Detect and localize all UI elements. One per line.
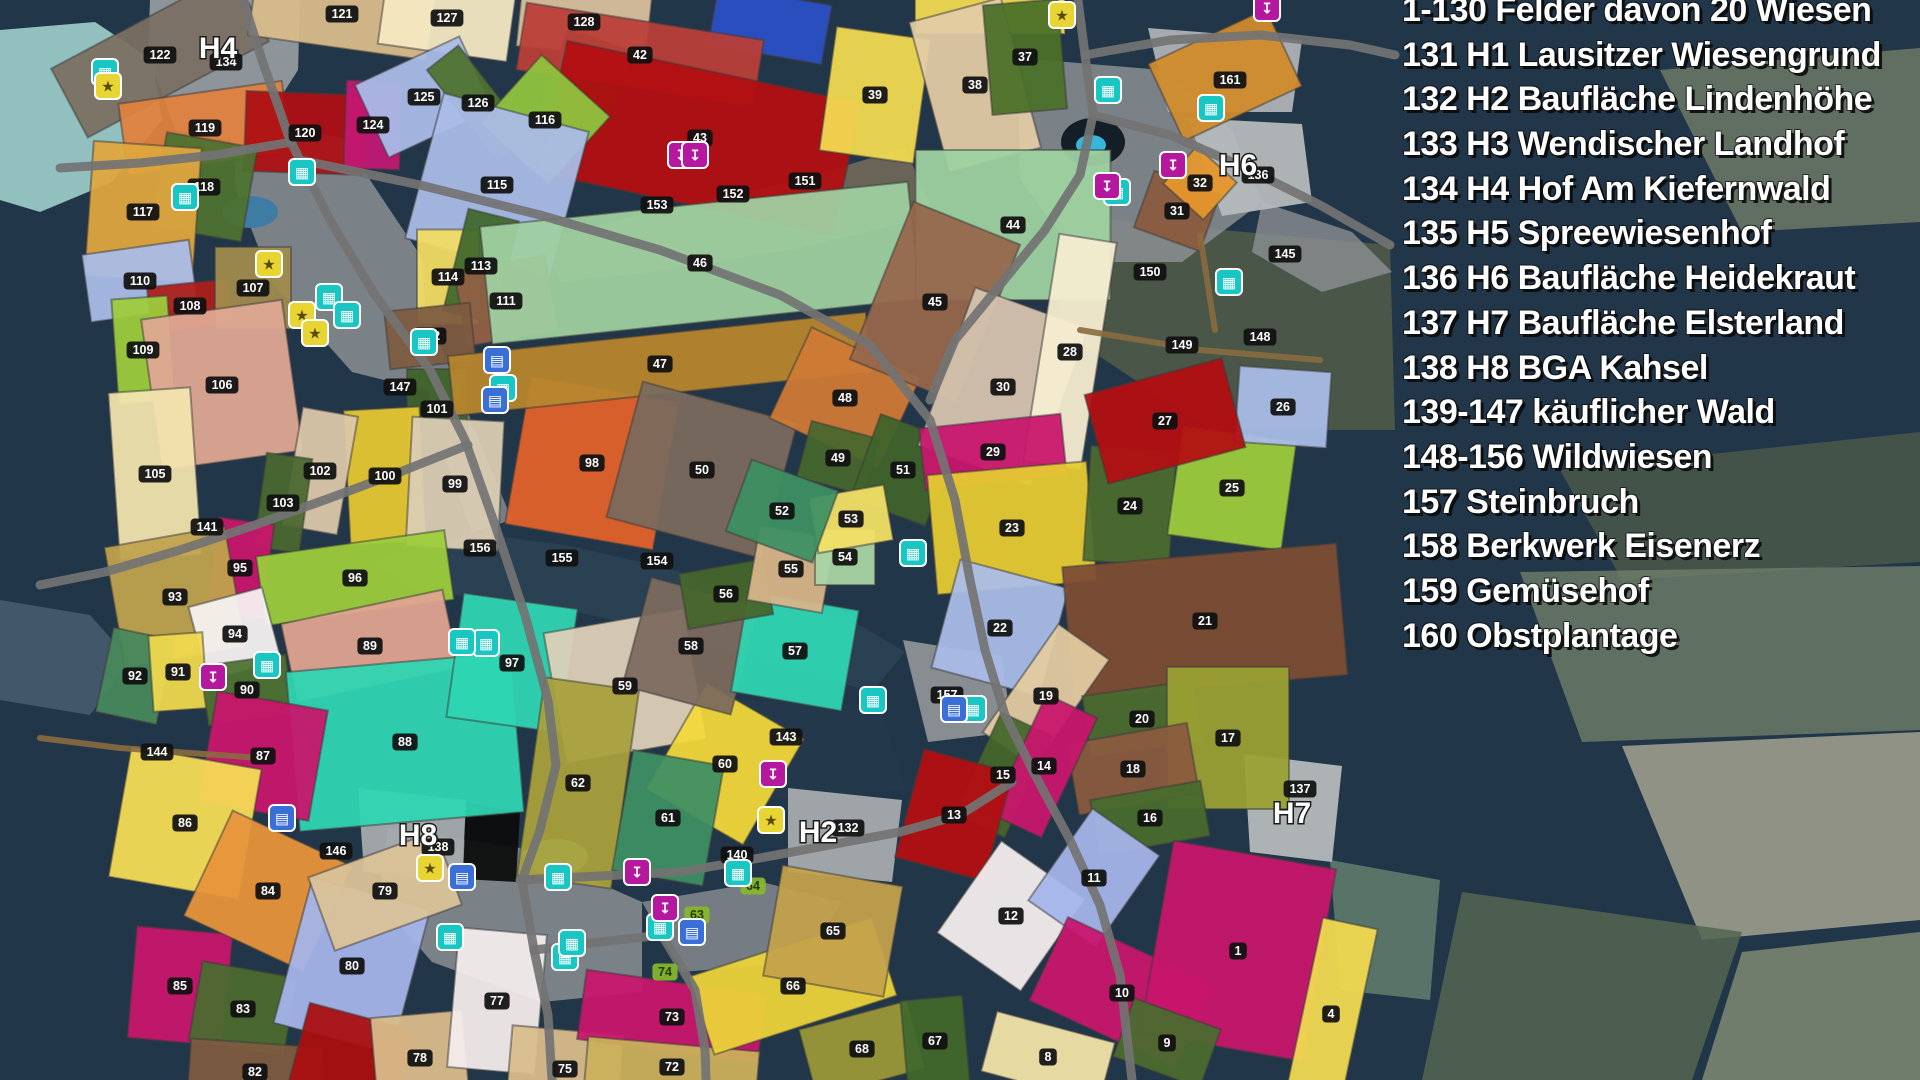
field-badge-152: 152	[717, 186, 750, 203]
svg-text:★: ★	[262, 256, 275, 274]
field-badge-100: 100	[369, 468, 402, 485]
svg-text:152: 152	[723, 187, 744, 201]
svg-text:61: 61	[661, 811, 675, 825]
svg-text:122: 122	[150, 48, 171, 62]
svg-text:143: 143	[776, 730, 797, 744]
poi-icon: ★	[1049, 2, 1075, 28]
svg-text:38: 38	[968, 78, 982, 92]
production-icon: ▦	[437, 924, 463, 950]
legend-line: 159 Gemüsehof	[1402, 569, 1920, 614]
svg-text:109: 109	[133, 343, 154, 357]
poi-icon: ★	[256, 251, 282, 277]
field-badge-87: 87	[250, 748, 275, 765]
svg-text:★: ★	[308, 325, 321, 343]
svg-text:▦: ▦	[906, 545, 920, 563]
svg-text:98: 98	[585, 456, 599, 470]
field-badge-48: 48	[832, 390, 857, 407]
svg-text:▦: ▦	[443, 929, 457, 947]
unload-point-icon: ↧	[200, 664, 226, 690]
svg-text:75: 75	[558, 1062, 572, 1076]
svg-text:8: 8	[1045, 1050, 1052, 1064]
svg-text:▦: ▦	[551, 869, 565, 887]
svg-text:51: 51	[896, 463, 910, 477]
svg-text:59: 59	[618, 679, 632, 693]
svg-text:161: 161	[1220, 73, 1241, 87]
production-icon: ▦	[545, 864, 571, 890]
field-badge-94: 94	[222, 626, 247, 643]
field-badge-150: 150	[1134, 264, 1167, 281]
field-badge-141: 141	[191, 519, 224, 536]
svg-text:127: 127	[437, 11, 458, 25]
svg-text:62: 62	[571, 776, 585, 790]
svg-text:25: 25	[1225, 481, 1239, 495]
hof-label-H2: H2	[799, 816, 837, 849]
svg-text:65: 65	[826, 924, 840, 938]
field-badge-95: 95	[227, 560, 252, 577]
unload-point-icon: ↧	[760, 761, 786, 787]
field-badge-85: 85	[167, 978, 192, 995]
map-screenshot: 1221211271284243393837119120124125126118…	[0, 0, 1920, 1080]
field-badge-32: 32	[1187, 175, 1212, 192]
svg-text:92: 92	[128, 669, 142, 683]
field-badge-151: 151	[789, 173, 822, 190]
svg-text:20: 20	[1135, 712, 1149, 726]
svg-text:▦: ▦	[260, 657, 274, 675]
svg-text:15: 15	[996, 768, 1010, 782]
svg-text:22: 22	[993, 621, 1007, 635]
field-badge-22: 22	[987, 620, 1012, 637]
svg-text:44: 44	[1006, 218, 1020, 232]
field-badge-92: 92	[122, 668, 147, 685]
field-badge-115: 115	[481, 177, 514, 194]
field-badge-149: 149	[1166, 337, 1199, 354]
field-badge-111: 111	[490, 293, 523, 310]
svg-text:▦: ▦	[340, 307, 354, 325]
field-badge-108: 108	[174, 298, 207, 315]
svg-text:49: 49	[831, 451, 845, 465]
svg-text:46: 46	[693, 256, 707, 270]
svg-text:119: 119	[195, 121, 215, 135]
field-badge-146: 146	[320, 843, 353, 860]
field-badge-106: 106	[206, 377, 239, 394]
svg-text:88: 88	[398, 735, 412, 749]
svg-text:37: 37	[1018, 50, 1032, 64]
production-icon: ▦	[172, 184, 198, 210]
field-badge-119: 119	[189, 120, 222, 137]
svg-text:114: 114	[438, 270, 458, 284]
svg-text:50: 50	[695, 463, 709, 477]
field-badge-98: 98	[579, 455, 604, 472]
svg-text:83: 83	[236, 1002, 250, 1016]
svg-text:19: 19	[1039, 689, 1053, 703]
field-badge-56: 56	[713, 586, 738, 603]
svg-text:17: 17	[1221, 731, 1235, 745]
field-badge-19: 19	[1033, 688, 1058, 705]
svg-text:1: 1	[1235, 944, 1242, 958]
svg-text:54: 54	[838, 550, 852, 564]
field-badge-143: 143	[770, 729, 803, 746]
svg-text:67: 67	[928, 1034, 942, 1048]
legend-line: 158 Berkwerk Eisenerz	[1402, 524, 1920, 569]
legend-line: 131 H1 Lausitzer Wiesengrund	[1402, 33, 1920, 78]
svg-text:↧: ↧	[689, 147, 702, 165]
field-badge-78: 78	[407, 1050, 432, 1067]
field-badge-72: 72	[659, 1059, 684, 1076]
svg-text:30: 30	[996, 380, 1010, 394]
svg-text:102: 102	[310, 464, 331, 478]
svg-text:48: 48	[838, 391, 852, 405]
svg-text:10: 10	[1115, 986, 1129, 1000]
shop-icon: ▤	[449, 864, 475, 890]
field-badge-13: 13	[941, 807, 966, 824]
svg-text:52: 52	[775, 504, 789, 518]
svg-text:72: 72	[665, 1060, 679, 1074]
field-badge-25: 25	[1219, 480, 1244, 497]
field-badge-44: 44	[1000, 217, 1025, 234]
svg-text:93: 93	[168, 590, 182, 604]
svg-text:29: 29	[986, 445, 1000, 459]
poi-icon: ★	[95, 73, 121, 99]
field-badge-89: 89	[357, 638, 382, 655]
svg-text:▦: ▦	[966, 701, 980, 719]
field-badge-11: 11	[1081, 870, 1106, 887]
production-icon: ▦	[860, 687, 886, 713]
svg-text:56: 56	[719, 587, 733, 601]
svg-text:▦: ▦	[417, 334, 431, 352]
svg-text:▦: ▦	[1204, 100, 1218, 118]
field-badge-59: 59	[612, 678, 637, 695]
svg-text:★: ★	[423, 860, 436, 878]
svg-text:▤: ▤	[488, 392, 502, 410]
svg-text:106: 106	[212, 378, 233, 392]
field-badge-14: 14	[1031, 758, 1056, 775]
field-badge-113: 113	[465, 258, 498, 275]
svg-text:26: 26	[1276, 400, 1290, 414]
svg-text:97: 97	[505, 656, 519, 670]
field-badge-148: 148	[1244, 329, 1277, 346]
field-badge-147: 147	[384, 379, 417, 396]
field-badge-90: 90	[234, 682, 259, 699]
field-badge-75: 75	[552, 1061, 577, 1078]
svg-text:87: 87	[256, 749, 270, 763]
svg-text:117: 117	[133, 205, 153, 219]
svg-text:57: 57	[788, 644, 802, 658]
legend-line: 138 H8 BGA Kahsel	[1402, 346, 1920, 391]
field-badge-66: 66	[780, 978, 805, 995]
field-badge-73: 73	[659, 1009, 684, 1026]
field-badge-84: 84	[255, 883, 280, 900]
svg-text:68: 68	[855, 1042, 869, 1056]
svg-text:▦: ▦	[866, 692, 880, 710]
svg-text:90: 90	[240, 683, 254, 697]
svg-text:86: 86	[178, 816, 192, 830]
svg-text:4: 4	[1328, 1007, 1335, 1021]
svg-text:147: 147	[390, 380, 411, 394]
production-icon: ▦	[473, 630, 499, 656]
field-badge-103: 103	[267, 495, 300, 512]
field-badge-77: 77	[484, 993, 509, 1010]
svg-text:★: ★	[1055, 7, 1068, 25]
svg-text:58: 58	[684, 639, 698, 653]
svg-text:94: 94	[228, 627, 242, 641]
legend-line: 135 H5 Spreewiesenhof	[1402, 211, 1920, 256]
svg-text:▦: ▦	[731, 865, 745, 883]
svg-text:14: 14	[1037, 759, 1051, 773]
svg-text:124: 124	[363, 118, 384, 132]
svg-text:▤: ▤	[455, 869, 469, 887]
field-badge-58: 58	[678, 638, 703, 655]
field-badge-126: 126	[462, 95, 495, 112]
svg-text:12: 12	[1004, 909, 1018, 923]
svg-text:↧: ↧	[659, 900, 672, 918]
field-badge-50: 50	[689, 462, 714, 479]
legend-line: 132 H2 Baufläche Lindenhöhe	[1402, 77, 1920, 122]
field-badge-17: 17	[1215, 730, 1240, 747]
field-badge-124: 124	[357, 117, 390, 134]
field-badge-145: 145	[1269, 246, 1302, 263]
svg-text:95: 95	[233, 561, 247, 575]
field-badge-47: 47	[647, 356, 672, 373]
field-badge-137: 137	[1284, 781, 1317, 798]
field-badge-105: 105	[139, 466, 172, 483]
production-icon: ▦	[900, 540, 926, 566]
svg-text:155: 155	[552, 551, 573, 565]
svg-text:120: 120	[295, 126, 316, 140]
svg-text:21: 21	[1198, 614, 1212, 628]
field-badge-116: 116	[529, 112, 562, 129]
svg-text:146: 146	[326, 844, 347, 858]
field-badge-20: 20	[1129, 711, 1154, 728]
field-badge-97: 97	[499, 655, 524, 672]
field-badge-68: 68	[849, 1041, 874, 1058]
svg-text:24: 24	[1123, 499, 1137, 513]
field-badge-55: 55	[778, 561, 803, 578]
field-badge-74: 74	[652, 964, 677, 981]
svg-text:156: 156	[470, 541, 491, 555]
svg-text:145: 145	[1275, 247, 1296, 261]
svg-text:9: 9	[1164, 1036, 1171, 1050]
svg-text:148: 148	[1250, 330, 1271, 344]
field-badge-127: 127	[431, 10, 464, 27]
svg-text:13: 13	[947, 808, 961, 822]
unload-point-icon: ↧	[652, 895, 678, 921]
svg-text:45: 45	[928, 295, 942, 309]
production-icon: ▦	[725, 860, 751, 886]
svg-text:89: 89	[363, 639, 377, 653]
svg-text:53: 53	[844, 512, 858, 526]
svg-text:82: 82	[248, 1065, 262, 1079]
field-badge-117: 117	[127, 204, 160, 221]
svg-text:▦: ▦	[479, 635, 493, 653]
field-badge-24: 24	[1117, 498, 1142, 515]
field-badge-120: 120	[289, 125, 322, 142]
legend-line: 157 Steinbruch	[1402, 480, 1920, 525]
field-badge-144: 144	[141, 744, 174, 761]
svg-text:113: 113	[471, 259, 491, 273]
unload-point-icon: ↧	[1160, 152, 1186, 178]
svg-text:99: 99	[448, 477, 462, 491]
field-badge-114: 114	[432, 269, 465, 286]
svg-text:80: 80	[345, 959, 359, 973]
legend-line: 134 H4 Hof Am Kiefernwald	[1402, 167, 1920, 212]
svg-text:23: 23	[1005, 521, 1019, 535]
svg-text:▦: ▦	[295, 164, 309, 182]
svg-text:126: 126	[468, 96, 489, 110]
legend-line: 133 H3 Wendischer Landhof	[1402, 122, 1920, 167]
production-icon: ▦	[1198, 95, 1224, 121]
field-badge-8: 8	[1039, 1049, 1057, 1066]
legend-line: 139-147 käuflicher Wald	[1402, 390, 1920, 435]
field-badge-153: 153	[641, 197, 674, 214]
legend-line: 148-156 Wildwiesen	[1402, 435, 1920, 480]
field-badge-122: 122	[144, 47, 177, 64]
field-badge-15: 15	[990, 767, 1015, 784]
svg-text:▤: ▤	[947, 701, 961, 719]
unload-point-icon: ↧	[1254, 0, 1280, 21]
field-badge-53: 53	[838, 511, 863, 528]
svg-text:▦: ▦	[455, 634, 469, 652]
svg-text:▤: ▤	[685, 924, 699, 942]
svg-text:47: 47	[653, 357, 667, 371]
field-badge-80: 80	[339, 958, 364, 975]
svg-text:132: 132	[838, 821, 859, 835]
field-badge-29: 29	[980, 444, 1005, 461]
field-badge-67: 67	[922, 1033, 947, 1050]
field-badge-107: 107	[237, 280, 270, 297]
svg-text:121: 121	[332, 7, 353, 21]
legend-line: 137 H7 Baufläche Elsterland	[1402, 301, 1920, 346]
field-badge-101: 101	[421, 401, 454, 418]
production-icon: ▦	[449, 629, 475, 655]
field-badge-23: 23	[999, 520, 1024, 537]
svg-text:128: 128	[574, 15, 595, 29]
field-badge-121: 121	[326, 6, 359, 23]
svg-text:73: 73	[665, 1010, 679, 1024]
shop-icon: ▤	[482, 387, 508, 413]
svg-text:66: 66	[786, 979, 800, 993]
svg-text:105: 105	[145, 467, 166, 481]
field-badge-109: 109	[127, 342, 160, 359]
svg-text:▦: ▦	[565, 935, 579, 953]
production-icon: ▦	[1095, 77, 1121, 103]
svg-text:▦: ▦	[178, 189, 192, 207]
field-badge-83: 83	[230, 1001, 255, 1018]
svg-text:32: 32	[1193, 176, 1207, 190]
field-badge-39: 39	[862, 87, 887, 104]
svg-text:144: 144	[147, 745, 168, 759]
field-badge-26: 26	[1270, 399, 1295, 416]
svg-text:60: 60	[718, 757, 732, 771]
production-icon: ▦	[254, 652, 280, 678]
field-badge-10: 10	[1109, 985, 1134, 1002]
svg-text:100: 100	[375, 469, 396, 483]
field-badge-161: 161	[1214, 72, 1247, 89]
field-badge-93: 93	[162, 589, 187, 606]
field-badge-4: 4	[1322, 1006, 1340, 1023]
hof-label-H6: H6	[1219, 149, 1257, 182]
svg-text:↧: ↧	[1167, 157, 1180, 175]
hof-label-H4: H4	[199, 32, 238, 65]
svg-text:150: 150	[1140, 265, 1161, 279]
field-badge-51: 51	[890, 462, 915, 479]
poi-icon: ★	[417, 855, 443, 881]
svg-text:79: 79	[378, 884, 392, 898]
field-badge-21: 21	[1192, 613, 1217, 630]
svg-text:91: 91	[171, 665, 185, 679]
hof-label-H7: H7	[1273, 797, 1311, 830]
svg-text:↧: ↧	[767, 766, 780, 784]
svg-text:↧: ↧	[1261, 0, 1274, 18]
production-icon: ▦	[289, 159, 315, 185]
field-badge-154: 154	[641, 553, 674, 570]
svg-text:116: 116	[535, 113, 555, 127]
legend-panel: 1-130 Felder davon 20 Wiesen 131 H1 Laus…	[1402, 0, 1920, 658]
hof-label-H8: H8	[399, 819, 437, 852]
svg-text:▤: ▤	[275, 810, 289, 828]
field-badge-30: 30	[990, 379, 1015, 396]
svg-text:151: 151	[795, 174, 816, 188]
field-badge-155: 155	[546, 550, 579, 567]
field-badge-128: 128	[568, 14, 601, 31]
field-badge-42: 42	[627, 47, 652, 64]
field-badge-18: 18	[1120, 761, 1145, 778]
svg-text:137: 137	[1290, 782, 1311, 796]
svg-text:▦: ▦	[1222, 274, 1236, 292]
field-badge-12: 12	[998, 908, 1023, 925]
legend-line: 1-130 Felder davon 20 Wiesen	[1402, 0, 1920, 33]
field-badge-65: 65	[820, 923, 845, 940]
field-badge-28: 28	[1057, 344, 1082, 361]
field-badge-61: 61	[655, 810, 680, 827]
field-badge-156: 156	[464, 540, 497, 557]
svg-text:141: 141	[197, 520, 218, 534]
field-badge-52: 52	[769, 503, 794, 520]
svg-text:▤: ▤	[490, 352, 504, 370]
production-icon: ▦	[1216, 269, 1242, 295]
field-badge-60: 60	[712, 756, 737, 773]
svg-text:↧: ↧	[207, 669, 220, 687]
svg-text:107: 107	[243, 281, 264, 295]
field-badge-79: 79	[372, 883, 397, 900]
field-badge-31: 31	[1164, 203, 1189, 220]
svg-text:111: 111	[496, 294, 516, 308]
svg-text:27: 27	[1158, 414, 1172, 428]
svg-text:153: 153	[647, 198, 668, 212]
svg-text:↧: ↧	[631, 864, 644, 882]
poi-icon: ★	[302, 320, 328, 346]
shop-icon: ▤	[269, 805, 295, 831]
field-badge-45: 45	[922, 294, 947, 311]
svg-text:↧: ↧	[1101, 178, 1114, 196]
field-badge-27: 27	[1152, 413, 1177, 430]
svg-text:154: 154	[647, 554, 668, 568]
field-badge-37: 37	[1012, 49, 1037, 66]
svg-text:85: 85	[173, 979, 187, 993]
svg-text:101: 101	[427, 402, 448, 416]
field-badge-1: 1	[1229, 943, 1247, 960]
field-badge-54: 54	[832, 549, 857, 566]
unload-point-icon: ↧	[1094, 173, 1120, 199]
svg-text:96: 96	[348, 571, 362, 585]
svg-text:103: 103	[273, 496, 294, 510]
svg-text:★: ★	[101, 78, 114, 96]
svg-text:28: 28	[1063, 345, 1077, 359]
field-badge-38: 38	[962, 77, 987, 94]
poi-icon: ★	[758, 807, 784, 833]
svg-text:78: 78	[413, 1051, 427, 1065]
svg-text:110: 110	[130, 274, 150, 288]
svg-text:55: 55	[784, 562, 798, 576]
